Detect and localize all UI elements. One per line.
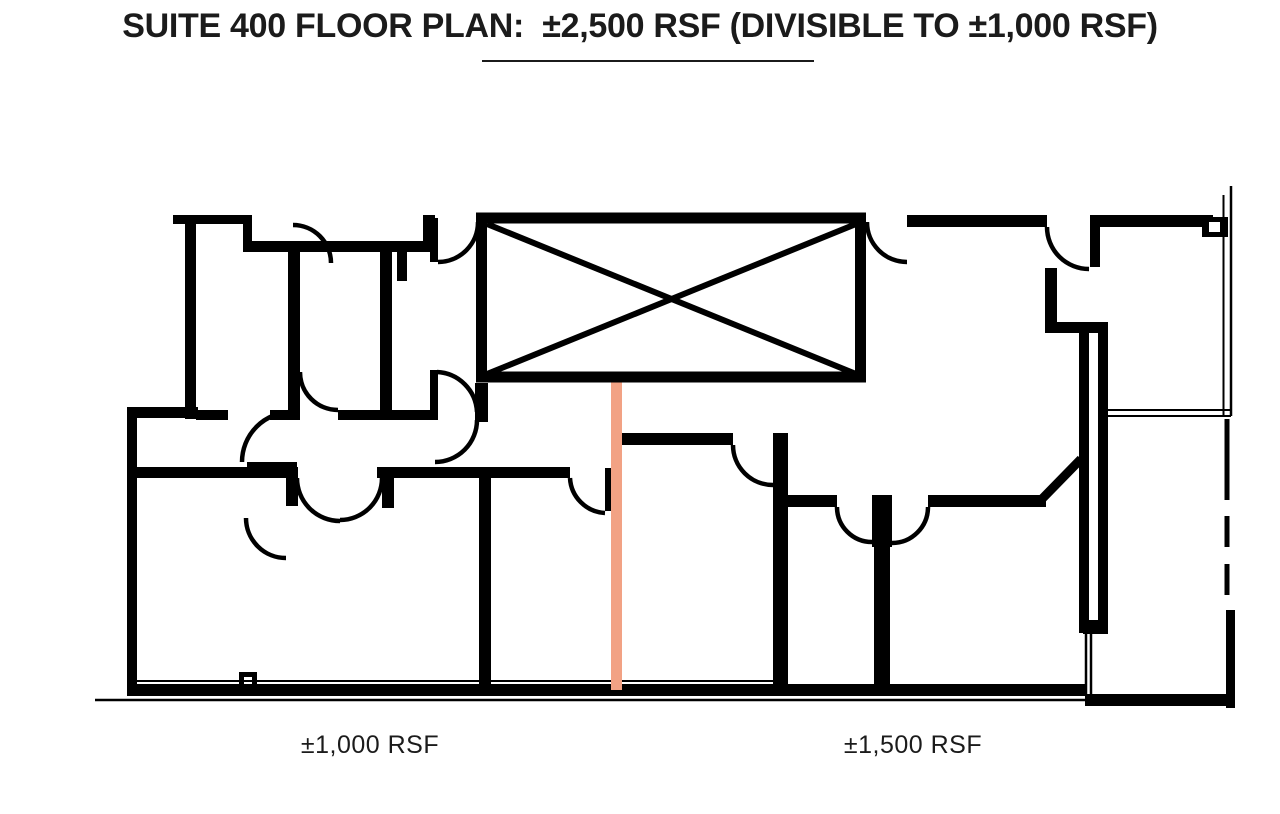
door-arc [246, 518, 286, 558]
wall-segment [479, 467, 491, 696]
wall-segment [247, 462, 297, 478]
door-arc [300, 372, 338, 410]
wall-segment [617, 433, 733, 445]
wall-segment [243, 241, 430, 252]
floor-plan-drawing [0, 0, 1280, 814]
floor-plan-page: SUITE 400 FLOOR PLAN: ±2,500 RSF (DIVISI… [0, 0, 1280, 814]
door-arc [297, 478, 340, 521]
wall-segment [1090, 215, 1100, 267]
door-arc [867, 222, 907, 262]
wall-segment [872, 495, 892, 547]
wall-segment [185, 224, 196, 419]
wall-segment [377, 467, 488, 478]
wall-segment [127, 407, 198, 418]
wall-segment [1045, 268, 1057, 328]
wall-segment [874, 547, 890, 692]
wall-segment [1079, 620, 1108, 633]
door-arc [435, 420, 477, 462]
wall-segment [928, 495, 1046, 507]
demising-line [611, 378, 622, 690]
wall-segment [288, 252, 300, 412]
wall-segment [173, 215, 252, 224]
wall-segment [380, 252, 392, 412]
wall-segment [338, 410, 432, 420]
door-arc [733, 445, 773, 485]
wall-segment [397, 252, 407, 281]
door-arc [570, 478, 605, 513]
wall-segment [1226, 610, 1235, 708]
wall-segment [907, 215, 1047, 227]
door-arc [438, 222, 478, 262]
wall-segment [1090, 215, 1213, 227]
wall-segment [196, 410, 228, 420]
wall-segment [1098, 333, 1108, 633]
diagonal-wall [1040, 459, 1081, 501]
wall-segment [243, 224, 252, 243]
wall-segment [127, 684, 1085, 696]
wall-segment [127, 407, 137, 696]
door-leaf [430, 218, 438, 262]
wall-segment [488, 467, 570, 478]
wall-segment [1045, 322, 1108, 333]
door-arc [892, 507, 928, 543]
door-arc [1047, 227, 1089, 269]
corner-window-inset [1209, 222, 1220, 232]
door-arc [340, 478, 382, 520]
left-area-label: ±1,000 RSF [301, 731, 439, 760]
wall-segment [783, 495, 837, 507]
door-arc [837, 507, 872, 542]
right-area-label: ±1,500 RSF [844, 731, 982, 760]
shaft-x-box [482, 218, 861, 377]
wall-segment [773, 433, 788, 692]
wall-segment [1079, 333, 1089, 633]
door-arc [437, 372, 477, 412]
